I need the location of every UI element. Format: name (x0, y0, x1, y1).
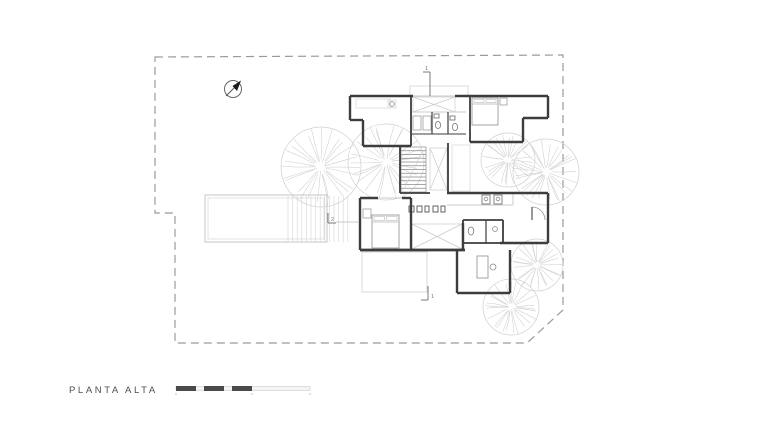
svg-text:1: 1 (425, 66, 428, 72)
plan-sheet: 121 PLANTA ALTA (0, 0, 780, 439)
scale-bar (175, 386, 311, 395)
svg-text:2: 2 (331, 217, 334, 223)
svg-text:1: 1 (431, 294, 434, 300)
stairs (401, 147, 426, 192)
wood-deck (288, 196, 348, 242)
plan-title: PLANTA ALTA (69, 385, 158, 396)
floor-plan-canvas: 121 (0, 0, 780, 439)
north-arrow-icon (225, 81, 242, 98)
pool (205, 195, 327, 242)
building-walls (350, 96, 548, 293)
light-linework (336, 86, 513, 292)
